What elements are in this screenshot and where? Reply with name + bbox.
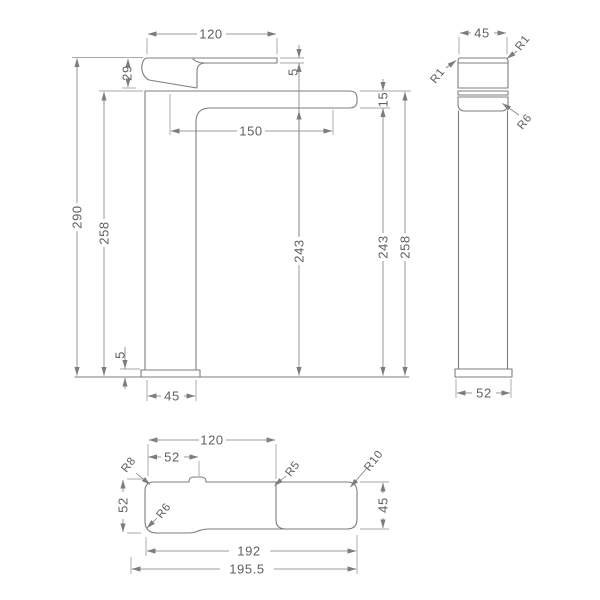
radius-label-side-spout-bottom: R6 [515, 112, 534, 132]
dim-front-spout-end-depth: 15 [360, 79, 411, 108]
dim-label-front-body-width: 45 [164, 389, 180, 404]
front-handle-outline [142, 58, 277, 88]
technical-drawing-page: 120 29 5 150 290 [0, 0, 600, 600]
radius-label-plan-bottom-left: R6 [154, 501, 173, 521]
dim-front-clearance-right: 243 [376, 109, 391, 376]
dim-label-plan-spout-length: 192 [237, 544, 261, 559]
dim-label-front-spout-top-height-right: 258 [398, 235, 413, 259]
side-base-plate [455, 369, 512, 377]
radius-label-side-top-right: R1 [513, 33, 532, 53]
dim-label-front-lever-length: 120 [199, 27, 223, 42]
front-base-plate [141, 370, 200, 377]
plan-lever-end-line [276, 482, 286, 529]
front-view-dimensions: 120 29 5 150 290 [70, 27, 413, 404]
dim-plan-base-depth: 52 [116, 479, 144, 533]
side-view-dimensions: 45 R1 R1 R6 52 [428, 26, 534, 401]
dim-label-front-spout-end-depth: 15 [376, 92, 391, 108]
radius-side-top-right: R1 [507, 33, 533, 58]
radius-side-top-left: R1 [428, 61, 456, 86]
dim-label-front-base-plate-thickness: 5 [113, 351, 128, 359]
dim-label-side-body-width: 45 [474, 26, 490, 41]
dim-front-spout-reach: 150 [170, 94, 333, 139]
dim-label-front-clearance-right: 243 [376, 235, 391, 259]
dim-label-front-handle-height: 29 [120, 65, 135, 81]
plan-body-outline [145, 477, 357, 533]
front-handle-detail-curve [193, 59, 204, 63]
dim-label-plan-overall-length: 195.5 [229, 562, 265, 577]
dim-side-base-width: 52 [456, 379, 511, 401]
dim-label-front-overall-height: 290 [70, 205, 85, 229]
side-spout-end-outline [458, 97, 508, 111]
dim-label-plan-base-width: 52 [164, 450, 180, 465]
radius-label-plan-top-left: R8 [119, 455, 138, 475]
radius-label-plan-lever-end: R5 [283, 459, 302, 479]
dim-plan-spout-width: 45 [360, 482, 391, 529]
dim-front-handle-height: 29 [120, 59, 137, 88]
dim-label-plan-base-depth: 52 [116, 497, 131, 513]
plan-view-outline [145, 477, 357, 533]
dim-front-body-width: 45 [147, 380, 196, 404]
dim-front-spout-top-height-left: 258 [97, 91, 144, 376]
dim-front-overall-height: 290 [70, 58, 144, 376]
dim-front-spout-top-height-right: 258 [398, 92, 413, 376]
dim-side-body-width: 45 [459, 26, 507, 55]
side-column-outline [459, 111, 508, 369]
dim-plan-overall-length: 195.5 [131, 557, 356, 577]
dim-front-lever-length: 120 [147, 27, 277, 55]
radius-plan-top-left: R8 [119, 455, 150, 484]
radius-plan-bottom-left: R6 [147, 501, 174, 528]
dim-label-plan-lever-length: 120 [200, 433, 224, 448]
dim-label-side-base-width: 52 [476, 386, 492, 401]
side-collar-strip [458, 91, 508, 95]
tap-dimension-drawing: 120 29 5 150 290 [0, 0, 600, 600]
front-view-outline [75, 58, 409, 377]
side-view-outline [455, 58, 512, 377]
radius-label-plan-spout-end: R10 [362, 448, 386, 473]
dim-plan-base-width: 52 [149, 450, 200, 477]
dim-label-plan-spout-width: 45 [376, 497, 391, 513]
plan-view-dimensions: 120 52 R8 52 R6 R5 [116, 433, 391, 577]
dim-front-base-plate-thickness: 5 [113, 347, 141, 389]
dim-label-front-clearance-center: 243 [292, 239, 307, 263]
dim-label-front-lever-thickness: 5 [286, 68, 301, 76]
radius-label-side-top-left: R1 [428, 66, 447, 86]
dim-front-lever-thickness: 5 [280, 45, 304, 77]
radius-plan-spout-end: R10 [351, 448, 386, 487]
dim-label-front-spout-top-height-left: 258 [97, 221, 112, 245]
dim-front-clearance-center: 243 [292, 77, 307, 376]
dim-label-front-spout-reach: 150 [239, 124, 263, 139]
